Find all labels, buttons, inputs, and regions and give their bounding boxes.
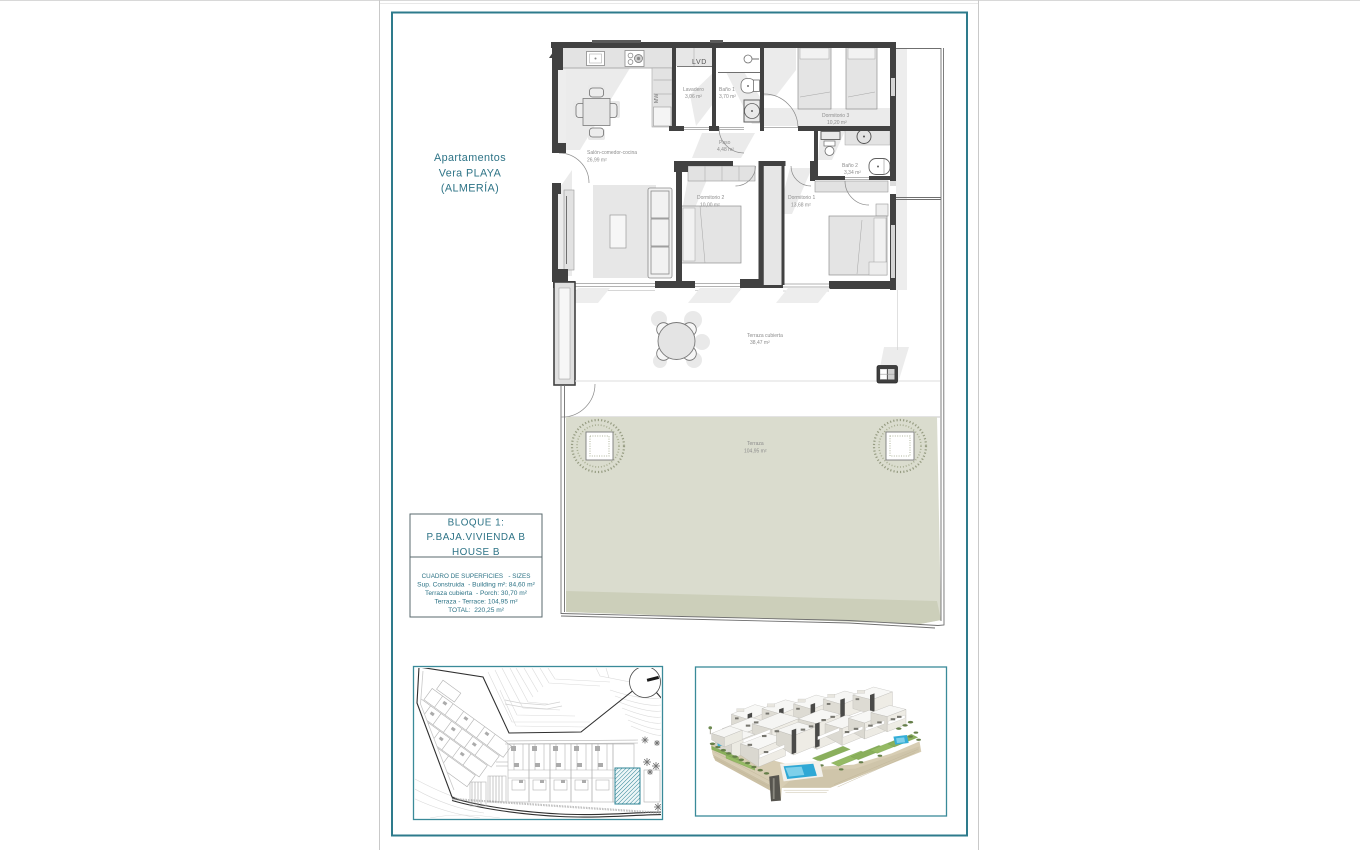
svg-text:HOUSE B: HOUSE B <box>452 547 500 558</box>
svg-text:Baño 2: Baño 2 <box>842 163 858 169</box>
svg-text:104,95 m²: 104,95 m² <box>744 449 767 455</box>
svg-text:Terraza cubierta - Porch: 30,: Terraza cubierta - Porch: 30,70 m² <box>425 590 528 597</box>
svg-text:LVD: LVD <box>692 59 707 66</box>
svg-text:BLOQUE 1:: BLOQUE 1: <box>448 518 505 529</box>
svg-text:10,00 m²: 10,00 m² <box>700 203 720 209</box>
svg-text:TOTAL: 220,25 m²: TOTAL: 220,25 m² <box>448 607 505 614</box>
svg-text:Terraza: Terraza <box>747 441 764 447</box>
svg-text:Paso: Paso <box>719 140 731 146</box>
svg-text:(ALMERÍA): (ALMERÍA) <box>441 182 499 195</box>
svg-text:Vera PLAYA: Vera PLAYA <box>439 168 502 180</box>
svg-text:38,47 m²: 38,47 m² <box>750 340 770 346</box>
svg-text:13,68 m²: 13,68 m² <box>791 203 811 209</box>
svg-text:Salón-comedor-cocina: Salón-comedor-cocina <box>587 150 637 156</box>
svg-text:P.BAJA.VIVIENDA B: P.BAJA.VIVIENDA B <box>427 532 526 543</box>
svg-text:4,48 m²: 4,48 m² <box>717 147 734 153</box>
svg-text:3,34 m²: 3,34 m² <box>844 170 861 176</box>
svg-text:Terraza - Terrace: 104,95 m²: Terraza - Terrace: 104,95 m² <box>434 599 518 606</box>
svg-text:Dormitorio 1: Dormitorio 1 <box>788 195 815 201</box>
svg-text:3,06 m²: 3,06 m² <box>685 94 702 100</box>
svg-text:Lavadero: Lavadero <box>683 87 704 93</box>
svg-text:Apartamentos: Apartamentos <box>434 152 506 164</box>
svg-text:Dormitorio 3: Dormitorio 3 <box>822 113 849 119</box>
svg-text:Terraza cubierta: Terraza cubierta <box>747 333 783 339</box>
svg-text:Baño 1: Baño 1 <box>719 87 735 93</box>
svg-text:MW: MW <box>654 94 660 103</box>
svg-text:Dormitorio 2: Dormitorio 2 <box>697 195 724 201</box>
svg-text:CUADRO DE SUPERFICIES - SIZE: CUADRO DE SUPERFICIES - SIZES <box>422 573 531 580</box>
svg-text:10,20 m²: 10,20 m² <box>827 120 847 126</box>
svg-text:26,99 m²: 26,99 m² <box>587 158 607 164</box>
svg-text:Sup. Construida - Building m²: Sup. Construida - Building m²: 84,60 m² <box>417 582 535 589</box>
svg-text:3,70 m²: 3,70 m² <box>719 94 736 100</box>
